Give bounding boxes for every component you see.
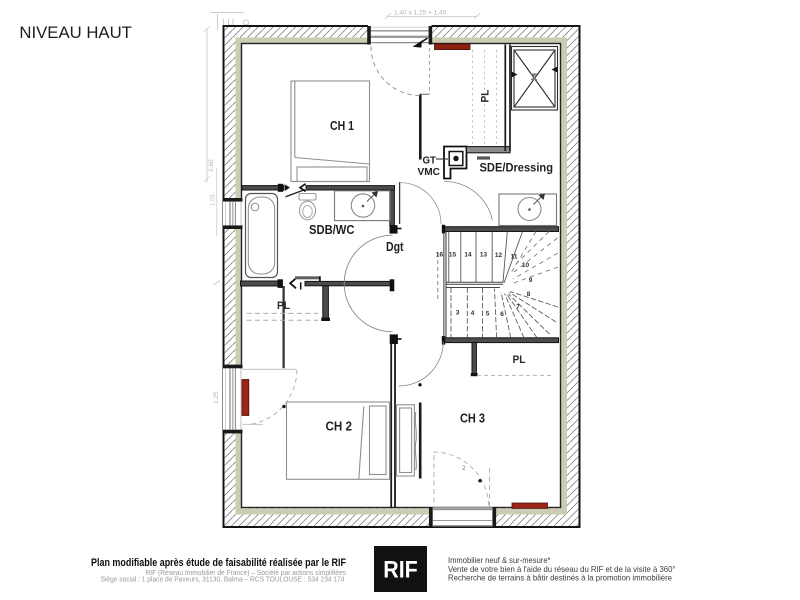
svg-text:Dgt: Dgt [386, 240, 404, 254]
svg-text:16: 16 [436, 252, 444, 259]
svg-text:GT: GT [423, 155, 437, 167]
svg-text:3: 3 [456, 310, 460, 317]
svg-text:Siège social : 1 place de Pave: Siège social : 1 place de Paveurs, 31130… [101, 577, 345, 584]
svg-text:2.60: 2.60 [208, 159, 215, 172]
svg-text:14: 14 [464, 252, 472, 259]
svg-text:4: 4 [471, 310, 475, 317]
svg-text:1.40 x 1.25 + 1.40: 1.40 x 1.25 + 1.40 [394, 10, 447, 17]
svg-text:12: 12 [495, 252, 503, 259]
svg-text:CH 1: CH 1 [330, 119, 354, 133]
svg-text:1.05: 1.05 [211, 194, 217, 206]
svg-text:5: 5 [486, 311, 490, 318]
svg-text:15: 15 [449, 252, 457, 259]
svg-text:VMC: VMC [418, 166, 441, 178]
svg-text:Plan modifiable après étude de: Plan modifiable après étude de faisabili… [91, 557, 346, 569]
svg-text:NIVEAU HAUT: NIVEAU HAUT [19, 24, 131, 42]
svg-text:6: 6 [500, 311, 504, 318]
svg-text:10: 10 [522, 262, 530, 269]
svg-text:Recherche de terrains à bâtir: Recherche de terrains à bâtir destinés à… [448, 573, 672, 583]
svg-text:13: 13 [480, 252, 488, 259]
svg-text:RIF: RIF [383, 557, 418, 584]
svg-text:7: 7 [516, 304, 520, 311]
svg-text:2: 2 [462, 465, 466, 472]
svg-text:PL: PL [277, 300, 290, 312]
svg-text:1.25: 1.25 [213, 391, 220, 404]
svg-text:PL: PL [513, 354, 526, 366]
svg-text:PL: PL [480, 89, 492, 102]
svg-text:SDB/WC: SDB/WC [309, 223, 355, 237]
svg-text:11: 11 [511, 254, 518, 261]
svg-text:CH 2: CH 2 [326, 420, 353, 434]
svg-text:CH 3: CH 3 [460, 412, 485, 426]
svg-text:9: 9 [529, 277, 533, 284]
svg-text:8: 8 [527, 291, 531, 298]
svg-text:SDE/Dressing: SDE/Dressing [480, 160, 554, 174]
